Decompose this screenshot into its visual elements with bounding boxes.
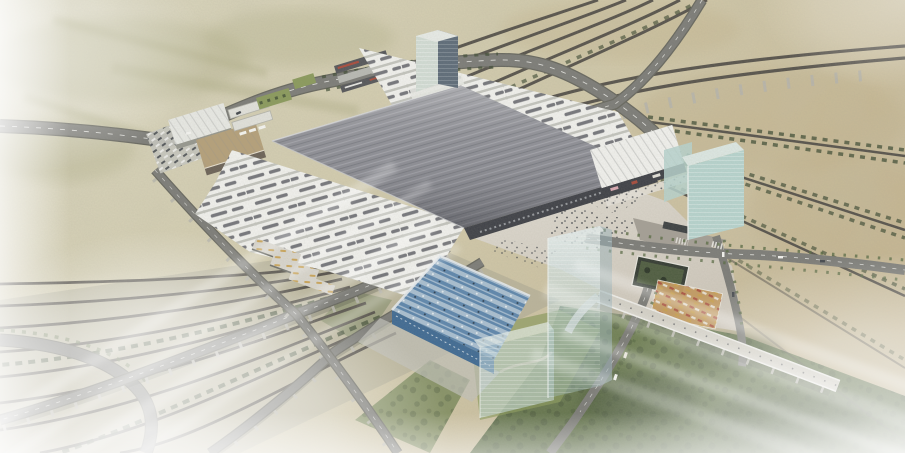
architectural-rendering	[0, 0, 905, 453]
scene-canvas	[0, 0, 905, 453]
